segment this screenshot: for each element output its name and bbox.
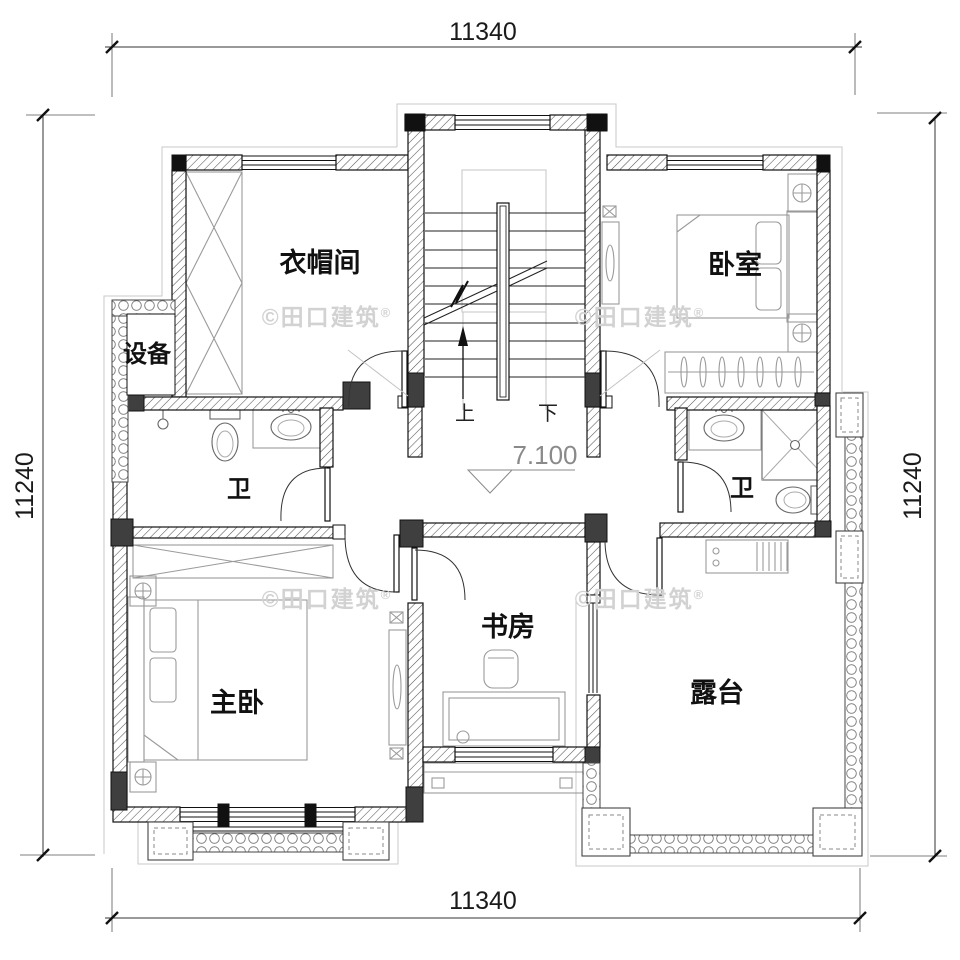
terrace-bench [706, 540, 788, 573]
stair-handrail [497, 203, 509, 400]
room-label-cloakroom: 衣帽间 [280, 247, 361, 278]
toilet-left [210, 409, 240, 461]
staircase [424, 170, 585, 410]
bedroom-nightstand-top [788, 174, 817, 212]
windows-layer [180, 116, 763, 822]
floor-plan-page: 衣帽间 卧室 设备 卫 卫 主卧 书房 露台 上 下 7.100 11340 1… [0, 0, 960, 960]
terrace-rail-post [836, 393, 863, 437]
dimension-left: 11240 [11, 109, 95, 861]
terrace-corner-post [813, 808, 862, 856]
stairwell-window [455, 116, 550, 130]
watermark: ©田口建筑® [262, 304, 393, 330]
dimension-right: 11240 [870, 112, 947, 862]
bay-window-planter [148, 822, 389, 860]
terrace-rail-post [836, 531, 863, 583]
master-nightstand-bottom [130, 762, 156, 792]
fixtures-layer [158, 404, 828, 514]
study-door [412, 548, 465, 600]
bath-right-door [678, 462, 731, 512]
door-guide-line [600, 350, 660, 396]
bedroom-dresser [602, 206, 619, 304]
dim-right-value: 11240 [899, 452, 927, 520]
bedroom-window [667, 156, 763, 170]
study-window [455, 748, 553, 762]
master-dresser [389, 612, 406, 759]
room-label-equipment: 设备 [123, 340, 172, 368]
stair-up-label: 上 [455, 402, 475, 425]
cloakroom-wardrobe [186, 172, 242, 394]
room-label-bedroom: 卧室 [708, 249, 762, 280]
stair-break-line [424, 261, 547, 325]
master-bed [128, 597, 307, 762]
dimension-top: 11340 [105, 18, 862, 97]
watermark: ©田口建筑® [575, 304, 706, 330]
room-label-bath-left: 卫 [227, 476, 251, 503]
terrace-railing-south [630, 835, 816, 853]
terrace-railing-east [845, 582, 862, 808]
room-label-bath-right: 卫 [730, 475, 754, 502]
master-armoire [133, 545, 333, 578]
stair-down-label: 下 [538, 403, 558, 425]
master-bedroom-door [345, 535, 399, 592]
dimension-bottom: 11340 [105, 868, 866, 932]
master-nightstand-top [130, 576, 156, 606]
watermark: ©田口建筑® [262, 586, 393, 612]
room-label-master-bedroom: 主卧 [210, 688, 264, 718]
watermark: ©田口建筑® [575, 586, 706, 612]
bath-left-door [281, 468, 330, 521]
elevation-value: 7.100 [512, 440, 577, 470]
terrace-railing-east [845, 437, 862, 533]
bedroom-closet-hangers [665, 352, 817, 393]
floor-plan-svg: 衣帽间 卧室 设备 卫 卫 主卧 书房 露台 上 下 7.100 11340 1… [0, 0, 960, 960]
room-label-study: 书房 [481, 612, 535, 642]
terrace-railing-west [583, 763, 600, 809]
master-window [180, 808, 355, 822]
study-desk [443, 650, 565, 746]
study-east-glazing [589, 600, 597, 693]
dim-bottom-value: 11340 [449, 887, 517, 915]
cloakroom-window [242, 156, 336, 170]
dim-top-value: 11340 [449, 18, 517, 46]
terrace-corner-post [582, 808, 630, 856]
bedroom-nightstand-bottom [788, 314, 817, 352]
dim-left-value: 11240 [11, 452, 39, 520]
wall-end-cap [333, 525, 345, 539]
railings-layer [112, 300, 863, 860]
stair-direction-arrow [458, 326, 468, 399]
elevation-marker: 7.100 [468, 440, 578, 493]
study-ledge [424, 763, 586, 793]
room-label-terrace: 露台 [690, 677, 744, 708]
toilet-right [776, 486, 822, 514]
